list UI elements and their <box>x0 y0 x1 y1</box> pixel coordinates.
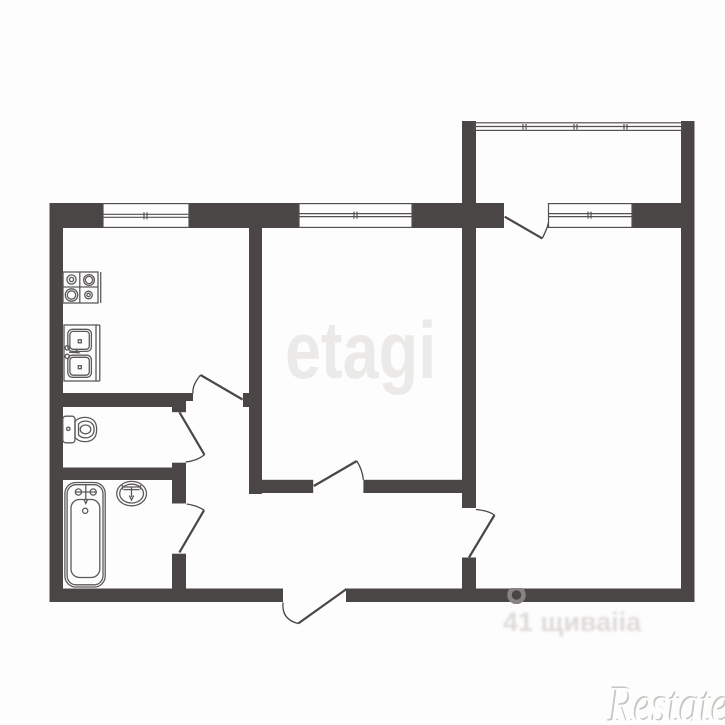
svg-text:Restate: Restate <box>608 677 725 725</box>
svg-text:41 щиваііа: 41 щиваііа <box>503 607 642 637</box>
svg-text:etagi: etagi <box>285 305 436 396</box>
